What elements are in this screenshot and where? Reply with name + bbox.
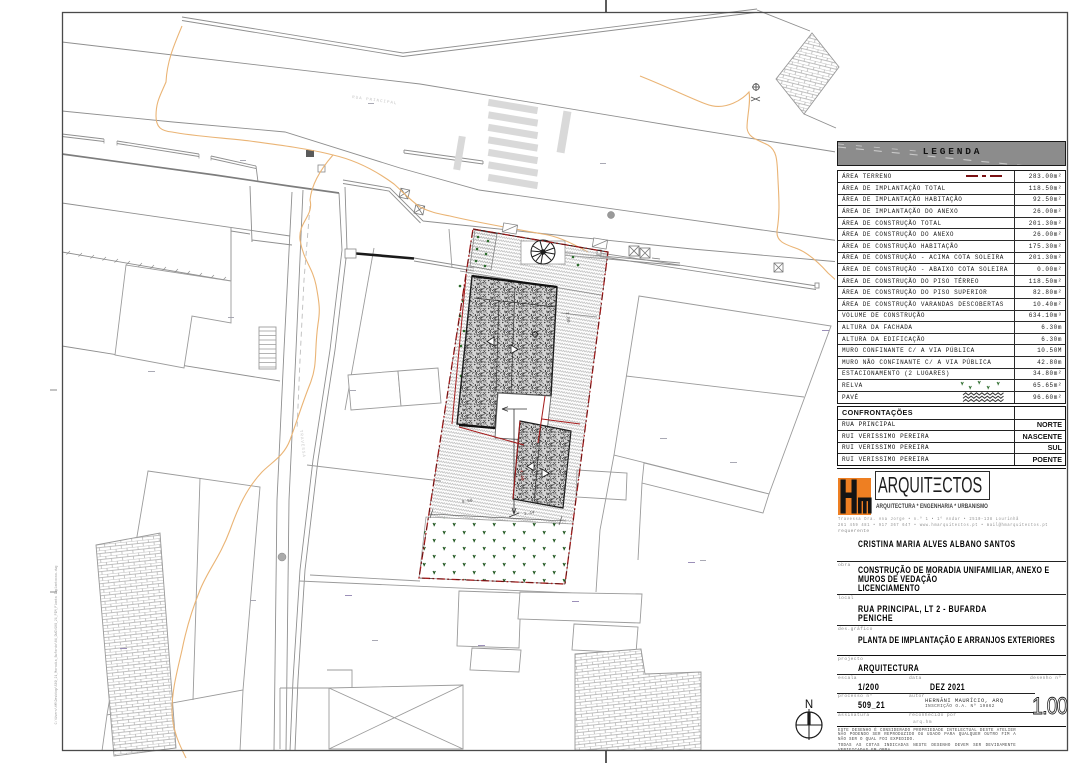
- svg-text:N: N: [805, 699, 813, 711]
- svg-text:C:\Users\HM\Desktop\509_21_Mor: C:\Users\HM\Desktop\509_21_Moradia_Bufar…: [54, 566, 58, 725]
